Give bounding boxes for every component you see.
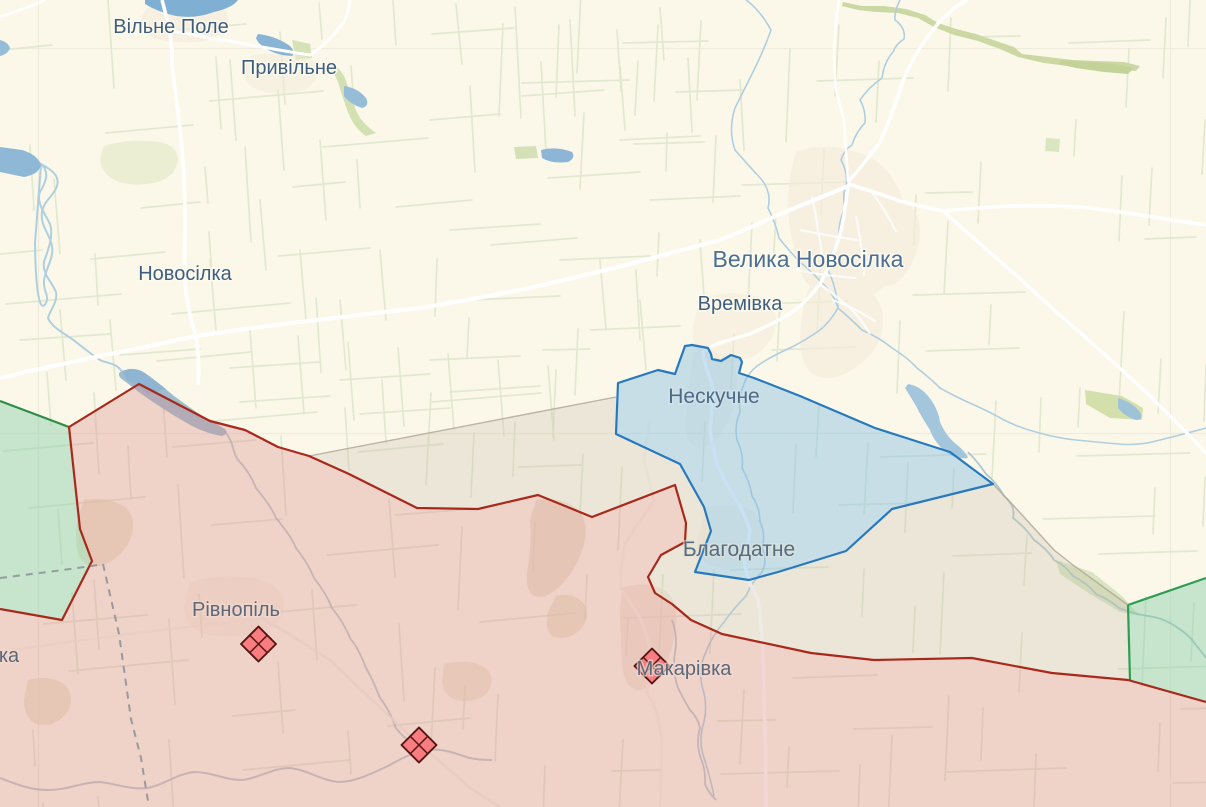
svg-text:Макарівка: Макарівка xyxy=(637,658,733,680)
svg-text:Благодатне: Благодатне xyxy=(683,538,795,561)
svg-text:Времівка: Времівка xyxy=(698,293,784,315)
svg-text:Рівнопіль: Рівнопіль xyxy=(192,599,280,621)
svg-text:Велика Новосілка: Велика Новосілка xyxy=(713,246,904,272)
svg-text:Новосілка: Новосілка xyxy=(138,263,232,285)
svg-text:ка: ка xyxy=(0,645,20,667)
svg-text:Вільне Поле: Вільне Поле xyxy=(113,16,228,38)
svg-text:Нескучне: Нескучне xyxy=(668,385,760,408)
svg-text:Привільне: Привільне xyxy=(241,57,337,79)
